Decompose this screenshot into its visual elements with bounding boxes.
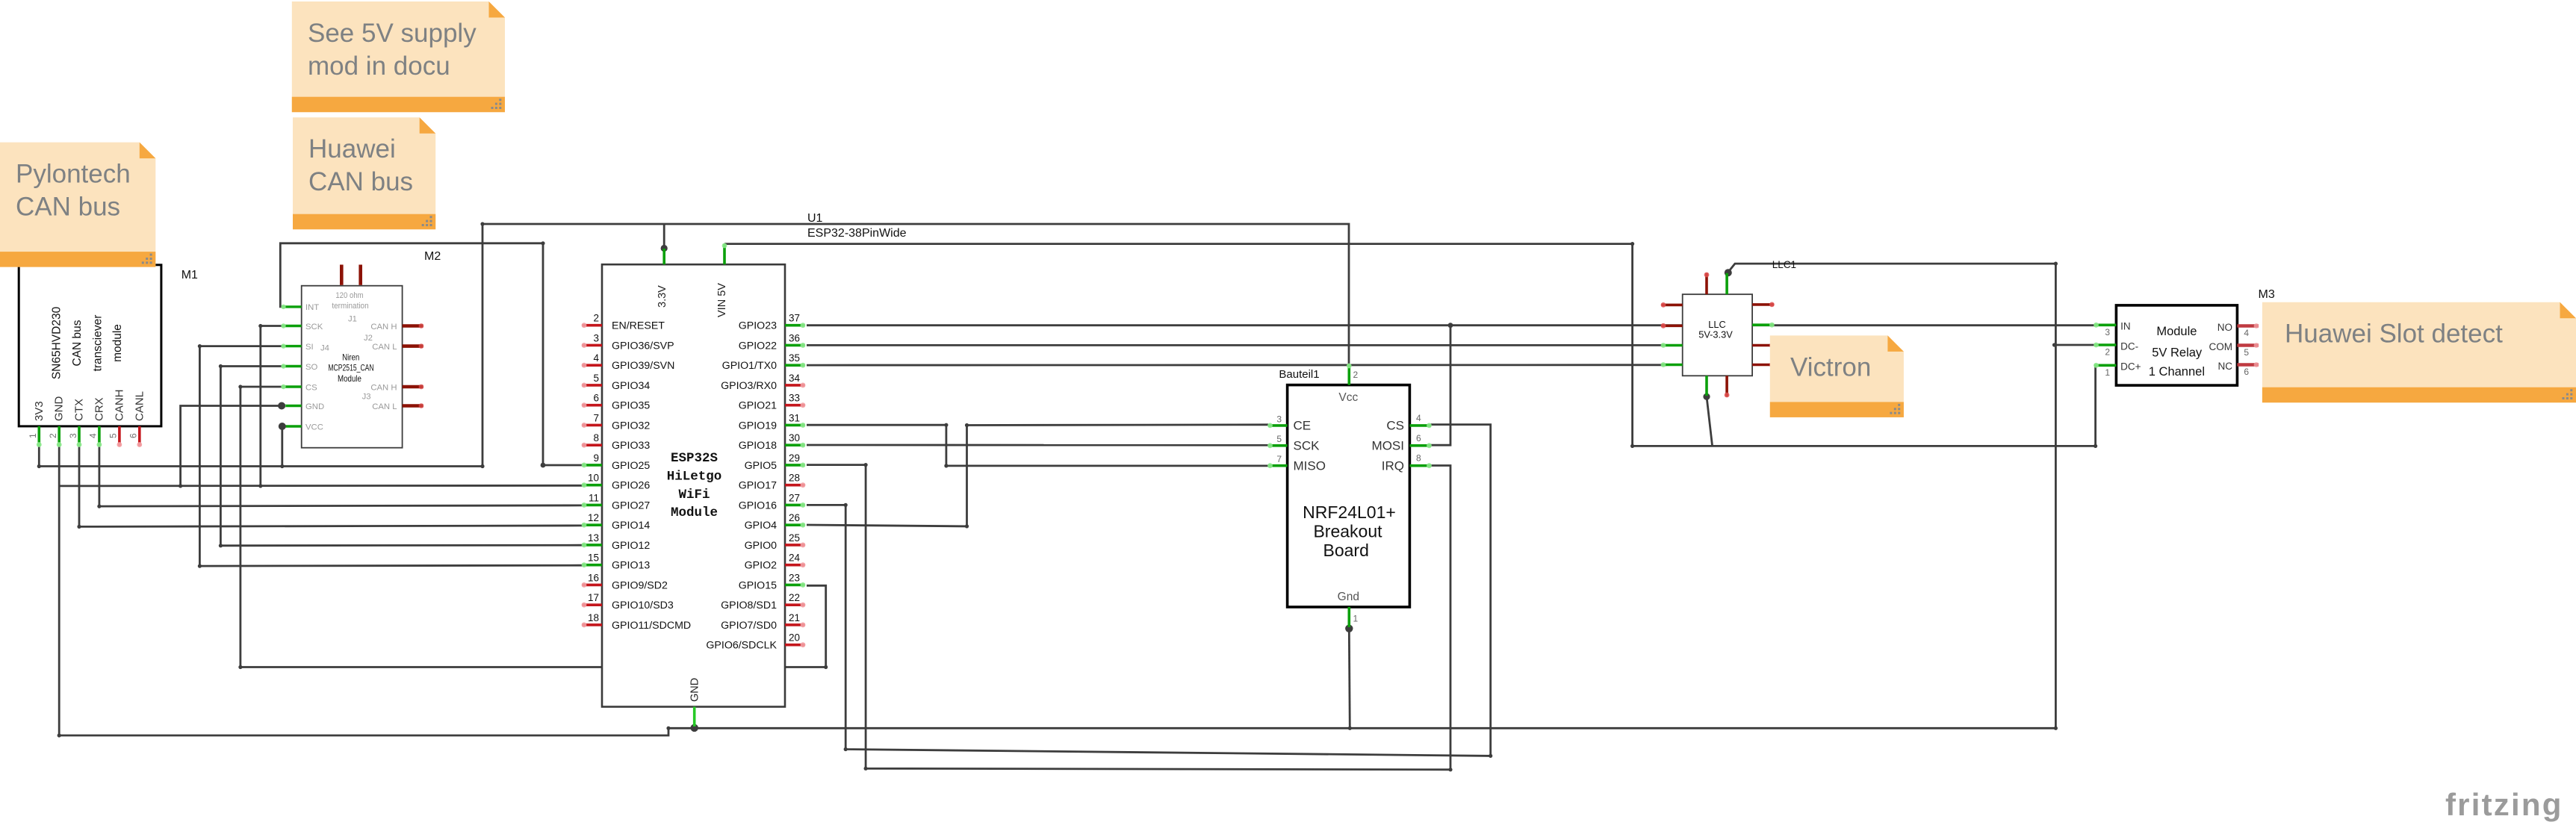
svg-text:GPIO0: GPIO0 (745, 540, 777, 552)
svg-text:Niren: Niren (342, 352, 359, 363)
svg-text:Module: Module (671, 505, 718, 520)
svg-text:12: 12 (588, 512, 599, 523)
svg-text:VCC: VCC (305, 423, 323, 432)
svg-text:CAN L: CAN L (372, 402, 397, 411)
svg-text:M2: M2 (424, 250, 441, 263)
svg-text:7: 7 (1276, 454, 1282, 464)
svg-text:GPIO26: GPIO26 (612, 480, 650, 492)
svg-text:5: 5 (108, 433, 119, 438)
svg-text:GPIO5: GPIO5 (745, 460, 777, 472)
svg-text:J1: J1 (348, 315, 357, 324)
svg-text:5: 5 (1276, 434, 1282, 444)
svg-text:ESP32S: ESP32S (671, 451, 718, 466)
svg-text:6: 6 (2244, 367, 2249, 377)
svg-text:6: 6 (128, 433, 139, 438)
svg-text:J4: J4 (320, 343, 329, 352)
svg-text:CAN bus: CAN bus (308, 167, 413, 196)
svg-text:GPIO39/SVN: GPIO39/SVN (612, 360, 674, 372)
svg-text:GPIO8/SD1: GPIO8/SD1 (721, 600, 777, 611)
svg-text:GPIO12: GPIO12 (612, 540, 650, 552)
svg-text:MOSI: MOSI (1372, 438, 1404, 452)
svg-text:NRF24L01+: NRF24L01+ (1303, 502, 1396, 522)
svg-text:13: 13 (588, 532, 599, 544)
svg-text:Gnd: Gnd (1338, 591, 1359, 603)
svg-text:COM: COM (2209, 341, 2233, 352)
svg-text:DC-: DC- (2120, 340, 2138, 352)
svg-text:GPIO25: GPIO25 (612, 460, 650, 472)
svg-text:GPIO1/TX0: GPIO1/TX0 (722, 360, 777, 372)
svg-text:SN65HVD230: SN65HVD230 (50, 306, 63, 379)
svg-text:GND: GND (689, 678, 701, 702)
svg-text:2: 2 (593, 313, 599, 324)
svg-text:4: 4 (2244, 328, 2249, 338)
svg-text:CRX: CRX (93, 397, 105, 421)
svg-text:3.3V: 3.3V (657, 285, 668, 308)
svg-text:See 5V supply: See 5V supply (308, 19, 477, 48)
svg-text:GND: GND (305, 402, 324, 411)
svg-text:GPIO10/SD3: GPIO10/SD3 (612, 600, 674, 611)
svg-text:GPIO23: GPIO23 (739, 320, 777, 332)
svg-text:1: 1 (1353, 614, 1359, 624)
svg-text:22: 22 (789, 592, 800, 603)
svg-text:Vcc: Vcc (1338, 391, 1358, 404)
svg-text:GPIO17: GPIO17 (739, 480, 777, 492)
svg-text:GPIO21: GPIO21 (739, 400, 777, 412)
svg-text:VIN 5V: VIN 5V (716, 283, 728, 317)
svg-text:26: 26 (789, 512, 800, 523)
svg-text:GPIO32: GPIO32 (612, 420, 650, 432)
svg-text:4: 4 (88, 433, 99, 438)
svg-text:6: 6 (1416, 433, 1421, 443)
svg-text:3: 3 (1276, 414, 1282, 424)
svg-text:25: 25 (789, 532, 800, 544)
svg-text:10: 10 (588, 473, 599, 484)
svg-text:2: 2 (48, 433, 58, 438)
svg-text:21: 21 (789, 612, 800, 623)
svg-text:GPIO18: GPIO18 (739, 440, 777, 452)
svg-text:1: 1 (2105, 367, 2110, 378)
svg-text:120 ohm: 120 ohm (335, 291, 363, 300)
svg-text:module: module (111, 324, 124, 362)
svg-text:16: 16 (588, 572, 599, 583)
svg-text:35: 35 (789, 352, 800, 364)
svg-text:termination: termination (332, 302, 368, 311)
svg-text:ESP32-38PinWide: ESP32-38PinWide (807, 227, 907, 240)
svg-text:CS: CS (1386, 419, 1404, 433)
svg-text:24: 24 (789, 552, 801, 564)
svg-text:MCP2515_CAN: MCP2515_CAN (328, 363, 373, 373)
svg-text:NC: NC (2218, 361, 2233, 372)
svg-text:WiFi: WiFi (678, 488, 710, 502)
svg-text:GPIO19: GPIO19 (739, 420, 777, 432)
svg-text:Board: Board (1323, 541, 1369, 560)
svg-text:IRQ: IRQ (1382, 458, 1404, 473)
svg-text:5: 5 (2244, 347, 2249, 358)
svg-text:mod in docu: mod in docu (308, 52, 450, 81)
svg-text:20: 20 (789, 632, 800, 644)
svg-text:CANL: CANL (133, 391, 146, 421)
svg-text:2: 2 (1353, 370, 1359, 380)
svg-text:SCK: SCK (1294, 438, 1320, 452)
svg-text:3: 3 (593, 332, 599, 343)
svg-text:CAN bus: CAN bus (71, 320, 84, 366)
svg-text:J3: J3 (362, 393, 371, 402)
svg-text:9: 9 (593, 452, 599, 464)
svg-text:GPIO7/SD0: GPIO7/SD0 (721, 620, 777, 632)
svg-text:IN: IN (2120, 321, 2131, 332)
svg-text:37: 37 (789, 313, 800, 324)
svg-text:SI: SI (305, 343, 314, 352)
svg-text:CAN H: CAN H (370, 323, 397, 331)
svg-text:GPIO14: GPIO14 (612, 520, 650, 532)
svg-text:17: 17 (588, 592, 599, 603)
svg-text:GPIO36/SVP: GPIO36/SVP (612, 340, 674, 352)
svg-text:Breakout: Breakout (1313, 522, 1382, 541)
svg-text:LLC1: LLC1 (1772, 259, 1796, 270)
svg-text:33: 33 (789, 393, 800, 404)
svg-text:GPIO16: GPIO16 (739, 499, 777, 511)
svg-text:M3: M3 (2259, 288, 2275, 301)
svg-text:GPIO15: GPIO15 (739, 579, 777, 591)
svg-text:27: 27 (789, 492, 800, 503)
svg-text:HiLetgo: HiLetgo (667, 469, 722, 484)
svg-text:18: 18 (588, 612, 599, 623)
svg-text:GPIO2: GPIO2 (745, 560, 777, 572)
svg-text:2: 2 (2105, 347, 2110, 358)
svg-text:Module: Module (2156, 325, 2197, 338)
svg-text:5: 5 (593, 373, 599, 384)
svg-text:CAN H: CAN H (370, 383, 397, 392)
svg-text:GPIO33: GPIO33 (612, 440, 650, 452)
svg-text:Victron: Victron (1790, 352, 1871, 382)
svg-text:INT: INT (305, 303, 319, 312)
svg-text:6: 6 (593, 393, 599, 404)
svg-text:SO: SO (305, 363, 318, 372)
svg-text:GPIO3/RX0: GPIO3/RX0 (721, 380, 777, 392)
svg-text:GPIO22: GPIO22 (739, 340, 777, 352)
svg-text:28: 28 (789, 473, 800, 484)
svg-text:CS: CS (305, 383, 317, 392)
svg-text:Pylontech: Pylontech (16, 160, 131, 189)
svg-text:8: 8 (1416, 453, 1421, 464)
svg-text:NO: NO (2217, 322, 2232, 333)
svg-text:23: 23 (789, 572, 800, 583)
svg-text:1: 1 (28, 433, 38, 438)
svg-text:CE: CE (1294, 419, 1312, 433)
svg-text:5V Relay: 5V Relay (2152, 346, 2203, 360)
svg-text:DC+: DC+ (2120, 361, 2141, 373)
svg-text:3: 3 (68, 433, 78, 438)
svg-text:29: 29 (789, 452, 800, 464)
svg-text:U1: U1 (807, 212, 823, 225)
svg-text:3V3: 3V3 (33, 401, 46, 421)
svg-text:Bauteil1: Bauteil1 (1279, 368, 1319, 381)
svg-text:CANH: CANH (113, 389, 125, 421)
svg-text:CAN L: CAN L (372, 343, 397, 352)
svg-text:GPIO27: GPIO27 (612, 499, 650, 511)
svg-text:GPIO34: GPIO34 (612, 380, 650, 392)
svg-text:3: 3 (2105, 327, 2110, 337)
svg-text:GPIO11/SDCMD: GPIO11/SDCMD (612, 620, 691, 632)
svg-text:GPIO6/SDCLK: GPIO6/SDCLK (706, 640, 777, 652)
svg-text:34: 34 (789, 373, 801, 384)
svg-text:J2: J2 (364, 334, 373, 343)
svg-text:GPIO13: GPIO13 (612, 560, 650, 572)
svg-text:30: 30 (789, 432, 800, 443)
svg-text:36: 36 (789, 332, 800, 343)
svg-text:CTX: CTX (73, 399, 86, 421)
svg-text:GPIO9/SD2: GPIO9/SD2 (612, 579, 668, 591)
svg-text:8: 8 (593, 432, 599, 443)
svg-text:EN/RESET: EN/RESET (612, 320, 665, 332)
svg-text:fritzing: fritzing (2445, 787, 2563, 822)
svg-text:CAN bus: CAN bus (16, 193, 120, 222)
svg-text:M1: M1 (181, 269, 198, 281)
svg-text:Huawei Slot detect: Huawei Slot detect (2285, 320, 2503, 349)
svg-text:4: 4 (1416, 413, 1421, 423)
svg-text:Huawei: Huawei (308, 134, 396, 164)
svg-text:GND: GND (53, 396, 66, 422)
svg-text:MISO: MISO (1294, 458, 1326, 473)
svg-text:4: 4 (593, 352, 599, 364)
svg-text:Module: Module (338, 373, 361, 384)
svg-text:transciever: transciever (92, 315, 105, 372)
svg-text:GPIO35: GPIO35 (612, 400, 650, 412)
svg-text:11: 11 (589, 492, 599, 503)
svg-text:GPIO4: GPIO4 (745, 520, 777, 532)
svg-text:15: 15 (588, 552, 599, 564)
svg-text:7: 7 (593, 412, 599, 423)
svg-text:31: 31 (789, 412, 800, 423)
svg-text:5V-3.3V: 5V-3.3V (1698, 329, 1733, 340)
svg-text:1 Channel: 1 Channel (2149, 365, 2205, 379)
svg-text:SCK: SCK (305, 323, 323, 331)
